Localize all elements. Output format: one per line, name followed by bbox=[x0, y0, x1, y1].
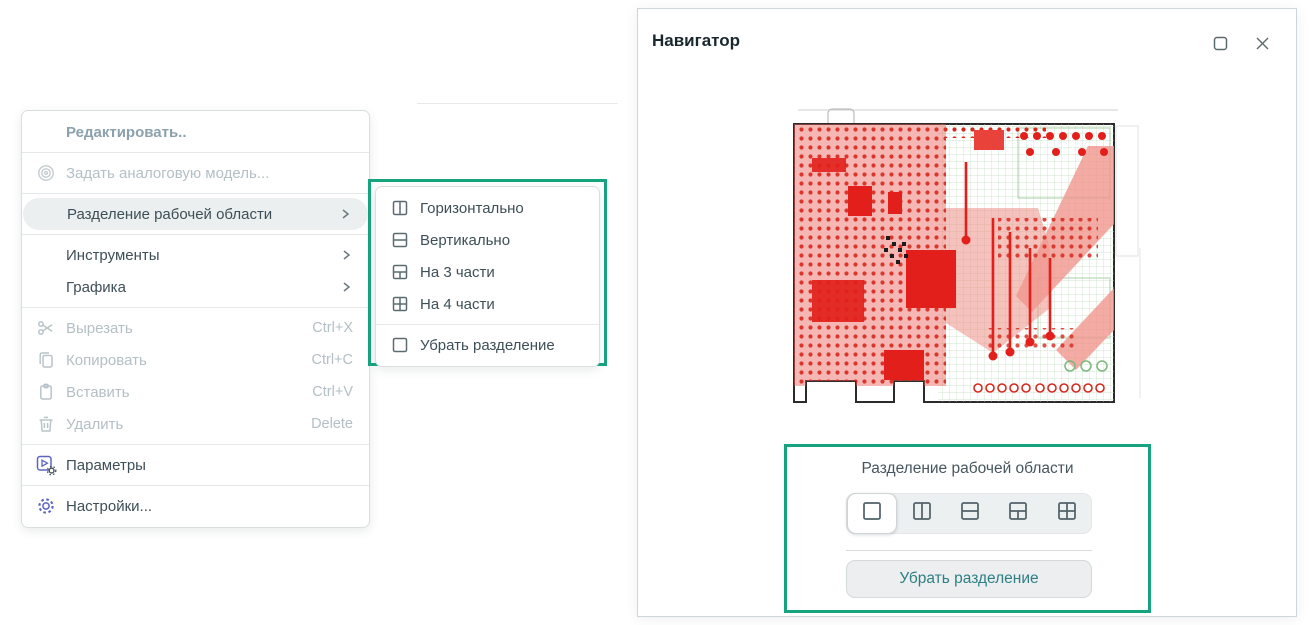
split-four-parts-icon bbox=[1055, 499, 1079, 528]
split-four-parts-icon bbox=[389, 294, 411, 314]
trash-icon bbox=[35, 414, 57, 434]
submenu-item-remove-split[interactable]: Убрать разделение bbox=[376, 329, 599, 361]
menu-divider bbox=[22, 485, 369, 486]
background-window-edge bbox=[417, 103, 618, 104]
menu-item-label: Копировать bbox=[66, 352, 147, 369]
split-two-columns-icon bbox=[910, 499, 934, 528]
menu-item-split-workspace[interactable]: Разделение рабочей области bbox=[23, 198, 368, 230]
submenu-item-label: Горизонтально bbox=[420, 200, 524, 217]
menu-item-label: Вырезать bbox=[66, 320, 133, 337]
screen: Редактировать.. Задать аналоговую модель… bbox=[0, 0, 1309, 625]
menu-header-label: Редактировать.. bbox=[66, 124, 187, 141]
menu-item-cut[interactable]: Вырезать Ctrl+X bbox=[22, 312, 369, 344]
menu-divider bbox=[22, 152, 369, 153]
submenu-item-three-parts[interactable]: На 3 части bbox=[376, 256, 599, 288]
split-option-three-parts[interactable] bbox=[994, 494, 1042, 533]
chevron-right-icon bbox=[339, 248, 353, 262]
split-option-two-columns[interactable] bbox=[897, 494, 945, 533]
annotation-box-split-section: Разделение рабочей области bbox=[784, 444, 1151, 613]
clipboard-icon bbox=[35, 382, 57, 402]
split-option-two-rows[interactable] bbox=[946, 494, 994, 533]
menu-item-label: Вставить bbox=[66, 384, 130, 401]
menu-item-set-analog-model[interactable]: Задать аналоговую модель... bbox=[22, 157, 369, 189]
menu-item-label: Разделение рабочей области bbox=[67, 206, 272, 223]
chevron-right-icon bbox=[338, 207, 352, 221]
split-section-label: Разделение рабочей области bbox=[787, 460, 1148, 478]
menu-item-label: Задать аналоговую модель... bbox=[66, 165, 269, 182]
shortcut-label: Ctrl+X bbox=[312, 320, 353, 336]
menu-item-label: Параметры bbox=[66, 457, 146, 474]
empty-icon-slot bbox=[35, 122, 57, 142]
annotation-box-submenu: Горизонтально Вертикально На 3 части bbox=[368, 179, 607, 366]
menu-header-edit[interactable]: Редактировать.. bbox=[22, 116, 369, 148]
pcb-preview-image bbox=[788, 98, 1144, 410]
split-submenu: Горизонтально Вертикально На 3 части bbox=[375, 186, 600, 367]
menu-divider bbox=[22, 307, 369, 308]
copy-icon bbox=[35, 350, 57, 370]
split-three-parts-icon bbox=[389, 262, 411, 282]
maximize-button[interactable] bbox=[1210, 33, 1230, 53]
split-option-four-parts[interactable] bbox=[1043, 494, 1091, 533]
shortcut-label: Ctrl+V bbox=[312, 384, 353, 400]
submenu-item-vertical[interactable]: Вертикально bbox=[376, 224, 599, 256]
remove-split-button[interactable]: Убрать разделение bbox=[846, 560, 1092, 598]
run-settings-icon bbox=[35, 455, 57, 475]
submenu-item-label: На 4 части bbox=[420, 296, 495, 313]
chevron-right-icon bbox=[339, 280, 353, 294]
section-divider bbox=[846, 550, 1092, 551]
empty-icon-slot bbox=[35, 277, 57, 297]
no-split-icon bbox=[389, 335, 411, 355]
empty-icon-slot bbox=[36, 204, 58, 224]
shortcut-label: Ctrl+C bbox=[312, 352, 354, 368]
menu-divider bbox=[22, 193, 369, 194]
close-button[interactable] bbox=[1252, 33, 1272, 53]
panel-title: Навигатор bbox=[652, 31, 740, 51]
menu-item-graphics[interactable]: Графика bbox=[22, 271, 369, 303]
no-split-icon bbox=[860, 499, 884, 528]
submenu-item-label: Убрать разделение bbox=[420, 337, 555, 354]
split-three-parts-icon bbox=[1006, 499, 1030, 528]
menu-item-parameters[interactable]: Параметры bbox=[22, 449, 369, 481]
scissors-icon bbox=[35, 318, 57, 338]
menu-item-label: Графика bbox=[66, 279, 126, 296]
split-layout-segmented-control bbox=[846, 493, 1092, 534]
menu-item-label: Настройки... bbox=[66, 498, 152, 515]
split-two-rows-icon bbox=[389, 230, 411, 250]
menu-item-label: Инструменты bbox=[66, 247, 160, 264]
submenu-item-label: На 3 части bbox=[420, 264, 495, 281]
submenu-item-four-parts[interactable]: На 4 части bbox=[376, 288, 599, 320]
split-two-columns-icon bbox=[389, 198, 411, 218]
menu-divider bbox=[22, 234, 369, 235]
menu-item-label: Удалить bbox=[66, 416, 123, 433]
menu-item-delete[interactable]: Удалить Delete bbox=[22, 408, 369, 440]
menu-item-tools[interactable]: Инструменты bbox=[22, 239, 369, 271]
menu-item-paste[interactable]: Вставить Ctrl+V bbox=[22, 376, 369, 408]
submenu-item-horizontal[interactable]: Горизонтально bbox=[376, 192, 599, 224]
menu-divider bbox=[376, 324, 599, 325]
shortcut-label: Delete bbox=[311, 416, 353, 432]
submenu-item-label: Вертикально bbox=[420, 232, 510, 249]
context-menu: Редактировать.. Задать аналоговую модель… bbox=[21, 110, 370, 528]
menu-item-settings[interactable]: Настройки... bbox=[22, 490, 369, 522]
spiral-icon bbox=[35, 163, 57, 183]
menu-item-copy[interactable]: Копировать Ctrl+C bbox=[22, 344, 369, 376]
window-controls bbox=[1210, 33, 1272, 53]
split-option-no-split[interactable] bbox=[847, 493, 897, 534]
navigator-panel: Навигатор bbox=[637, 8, 1297, 617]
split-two-rows-icon bbox=[958, 499, 982, 528]
empty-icon-slot bbox=[35, 245, 57, 265]
menu-divider bbox=[22, 444, 369, 445]
gear-icon bbox=[35, 496, 57, 516]
